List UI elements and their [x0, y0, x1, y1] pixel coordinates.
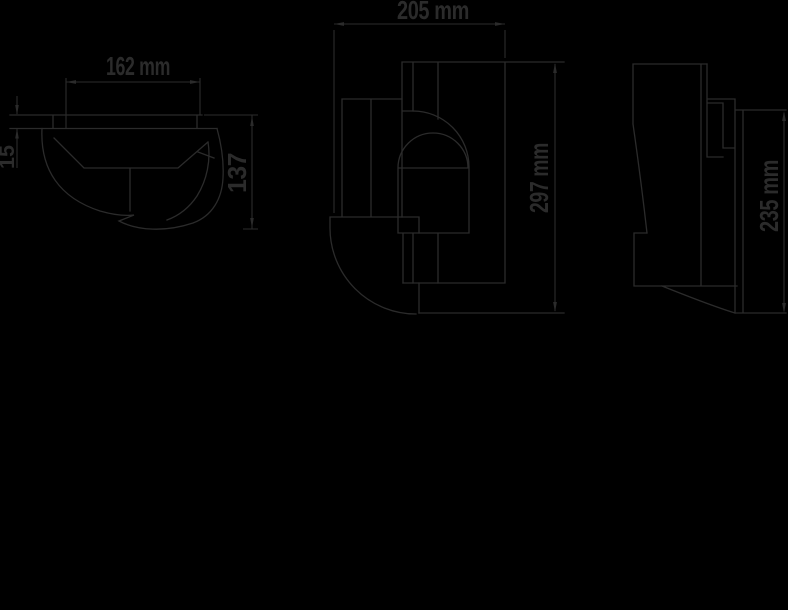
dim-137-label: 137: [222, 153, 252, 193]
dim-162-lines: [66, 78, 200, 128]
dim-15-label: 15: [0, 145, 19, 169]
dim-162-label: 162 mm: [106, 51, 170, 81]
front-view: 205 mm 297 mm: [330, 0, 564, 314]
side-view: 235 mm: [633, 64, 786, 313]
dim-15-arrowheads: [15, 105, 19, 139]
dim-205-lines: [334, 24, 505, 213]
dim-297-label: 297 mm: [524, 143, 554, 213]
technical-drawing: 162 mm 15 137 205 mm 297 mm 23: [0, 0, 788, 610]
side-view-outline: [633, 64, 737, 313]
top-view-shell: [42, 129, 223, 230]
front-view-lens: [398, 111, 469, 283]
top-view-plate: [10, 115, 217, 129]
front-view-arm: [330, 99, 419, 314]
dimension-drawing-canvas: 162 mm 15 137 205 mm 297 mm 23: [0, 0, 788, 610]
dim-205-label: 205 mm: [397, 0, 469, 25]
dim-235-label: 235 mm: [754, 160, 784, 232]
top-view: 162 mm 15 137: [0, 51, 258, 229]
